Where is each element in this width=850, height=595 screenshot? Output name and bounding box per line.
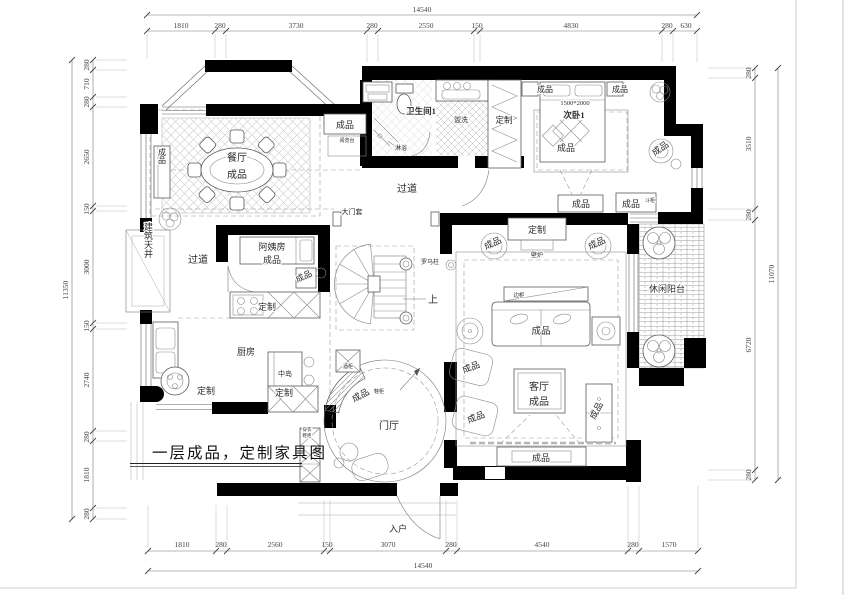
label-dining-tag: 成品 [227,169,247,181]
label-bedroom-dresser-sub: 斗柜 [645,197,655,204]
label-bedroom-name: 次卧1 [563,110,584,120]
label-balcony-name: 休闲阳台 [649,283,685,294]
foyer-chaise [349,451,390,483]
dim-right-seg-2: 280 [744,209,753,221]
label-foyer-shoe-tag: 成品 [350,386,371,404]
dim-left-seg-9: 1810 [82,467,91,482]
label-corridor-left: 过道 [188,253,208,266]
label-dining-name: 餐厅 [227,151,247,164]
label-bedroom-bench: 成品 [572,198,590,209]
label-living-name: 客厅 [529,380,549,393]
label-corridor-top: 过道 [397,182,417,195]
label-foyer-shoe-sub: 鞋柜 [374,388,384,395]
floor-plan-canvas: 14540 1810 280 3730 280 2550 150 4830 28… [0,0,850,595]
dim-left-seg-5: 3000 [82,259,91,274]
dim-top-seg-6: 4830 [564,21,579,30]
label-foyer-mirror-2: 鞋柜 [303,432,312,439]
shoe-cabinet-arc [325,366,365,413]
dimensions-bottom: 1810 280 2560 150 3070 280 4540 280 1570… [145,486,701,574]
label-foyer-mirror-1: 穿衣 [303,426,312,433]
dim-right-seg-0: 280 [744,67,753,79]
label-door-case: 大门套 [342,207,363,216]
square-side-table [592,317,620,345]
dim-right-seg-1: 3510 [744,136,753,151]
floor-plan-sheet: 14540 1810 280 3730 280 2550 150 4830 28… [0,0,850,595]
dim-bottom-seg-4: 3070 [381,540,396,549]
dim-top-seg-2: 3730 [289,21,304,30]
label-pantry-tag: 成品 [336,119,354,130]
dim-bottom-seg-5: 280 [445,540,457,549]
dim-top-seg-4: 2550 [419,21,434,30]
toilet-tank [396,84,413,93]
label-nanny-custom: 定制 [258,301,276,312]
dim-bottom-seg-1: 280 [215,540,227,549]
dim-top-seg-1: 280 [214,21,226,30]
label-bedroom-wardrobe: 定制 [495,115,512,125]
dimensions-left: 280 710 280 2650 150 3000 150 2740 280 1… [61,57,127,522]
dim-top-seg-3: 280 [366,21,378,30]
label-pantry-sub: 阅览台 [339,137,354,144]
dim-left-seg-6: 150 [82,320,91,332]
plant [643,227,675,259]
label-kitchen-custom-left: 定制 [197,385,215,396]
nanny-door-arc [228,266,254,292]
dim-top-overall: 14540 [413,5,432,14]
label-living-tv: 成品 [532,452,550,463]
label-bedroom-bed: 成品 [557,142,575,153]
label-living-tag: 成品 [529,396,549,408]
bedroom-door-arc [462,170,489,206]
dim-left-seg-4: 150 [82,203,91,215]
label-shaft-name: 建筑天井 [143,221,153,259]
label-stairs-up: 上 [428,294,438,306]
label-nanny-tag: 成品 [263,254,281,265]
label-bedroom-ns-left: 成品 [537,84,553,94]
label-kitchen-custom-right: 定制 [275,387,293,398]
staircase [333,212,456,324]
label-kitchen-island: 中岛 [278,369,292,378]
dim-left-seg-7: 2740 [82,372,91,387]
dim-left-seg-0: 280 [82,59,91,71]
dim-top-seg-8: 630 [680,21,692,30]
label-living-top-custom: 定制 [528,224,546,235]
dim-left-seg-1: 710 [82,78,91,90]
dimensions-top: 14540 1810 280 3730 280 2550 150 4830 28… [144,5,700,62]
dim-right-seg-3: 6720 [744,337,753,352]
entry [131,402,456,539]
dim-bottom-seg-8: 1570 [662,540,677,549]
label-living-chair-1: 成品 [460,358,481,374]
label-bedroom-ns-right: 成品 [612,84,628,94]
drawing-title: 一层成品，定制家具图 [152,444,327,462]
label-foyer-wine: 酒柜 [343,363,353,370]
wash-counter [436,80,488,101]
label-bedroom-dresser: 成品 [622,198,640,209]
dimensions-right: 280 3510 280 6720 280 11070 [708,65,781,483]
dim-left-seg-2: 280 [82,96,91,108]
deco-table [161,367,189,395]
label-nanny-name: 阿姨房 [258,241,285,252]
roman-column-icon [446,260,456,270]
dim-bottom-seg-6: 4540 [535,540,550,549]
dim-bottom-seg-2: 2560 [268,540,283,549]
label-living-fireplace: 壁炉 [531,251,543,259]
label-bath-shower: 淋浴 [395,144,407,152]
dim-bottom-seg-7: 280 [627,540,639,549]
label-living-side-cabinet: 边柜 [513,291,525,299]
dim-top-seg-0: 1810 [174,21,189,30]
label-bath-name: 卫生间1 [406,106,436,116]
label-kitchen-name: 厨房 [237,346,255,357]
label-living-chair-2: 成品 [465,408,486,424]
dim-top-seg-5: 150 [471,21,483,30]
dim-right-seg-4: 280 [744,469,753,481]
dim-bottom-overall: 14540 [414,561,433,570]
label-living-sofa: 成品 [531,325,550,337]
plant [643,335,675,367]
foyer [300,350,446,483]
label-bedroom-armchair: 成品 [649,138,670,157]
label-entry-name: 入户 [389,523,407,534]
fireplace [521,240,553,250]
round-side-table [457,318,483,344]
dim-bottom-seg-3: 150 [321,540,333,549]
label-bath-wash: 盥洗 [454,115,468,124]
dim-left-seg-10: 280 [82,508,91,520]
dim-left-seg-3: 2650 [82,149,91,164]
dim-bottom-seg-0: 1810 [175,540,190,549]
foyer-chair [340,443,358,461]
label-dining-sideboard: 成品 [158,147,167,165]
dim-left-overall: 11350 [61,281,70,300]
label-roman-column: 罗马柱 [421,258,439,266]
title-block: 一层成品，定制家具图 [130,444,327,467]
dim-left-seg-8: 280 [82,431,91,443]
nightstand-left [522,82,538,96]
label-bedroom-bed-size: 1500*2000 [560,100,589,107]
dim-right-overall: 11070 [767,265,776,284]
dim-top-seg-7: 280 [661,21,673,30]
label-foyer-name: 门厅 [379,419,399,432]
